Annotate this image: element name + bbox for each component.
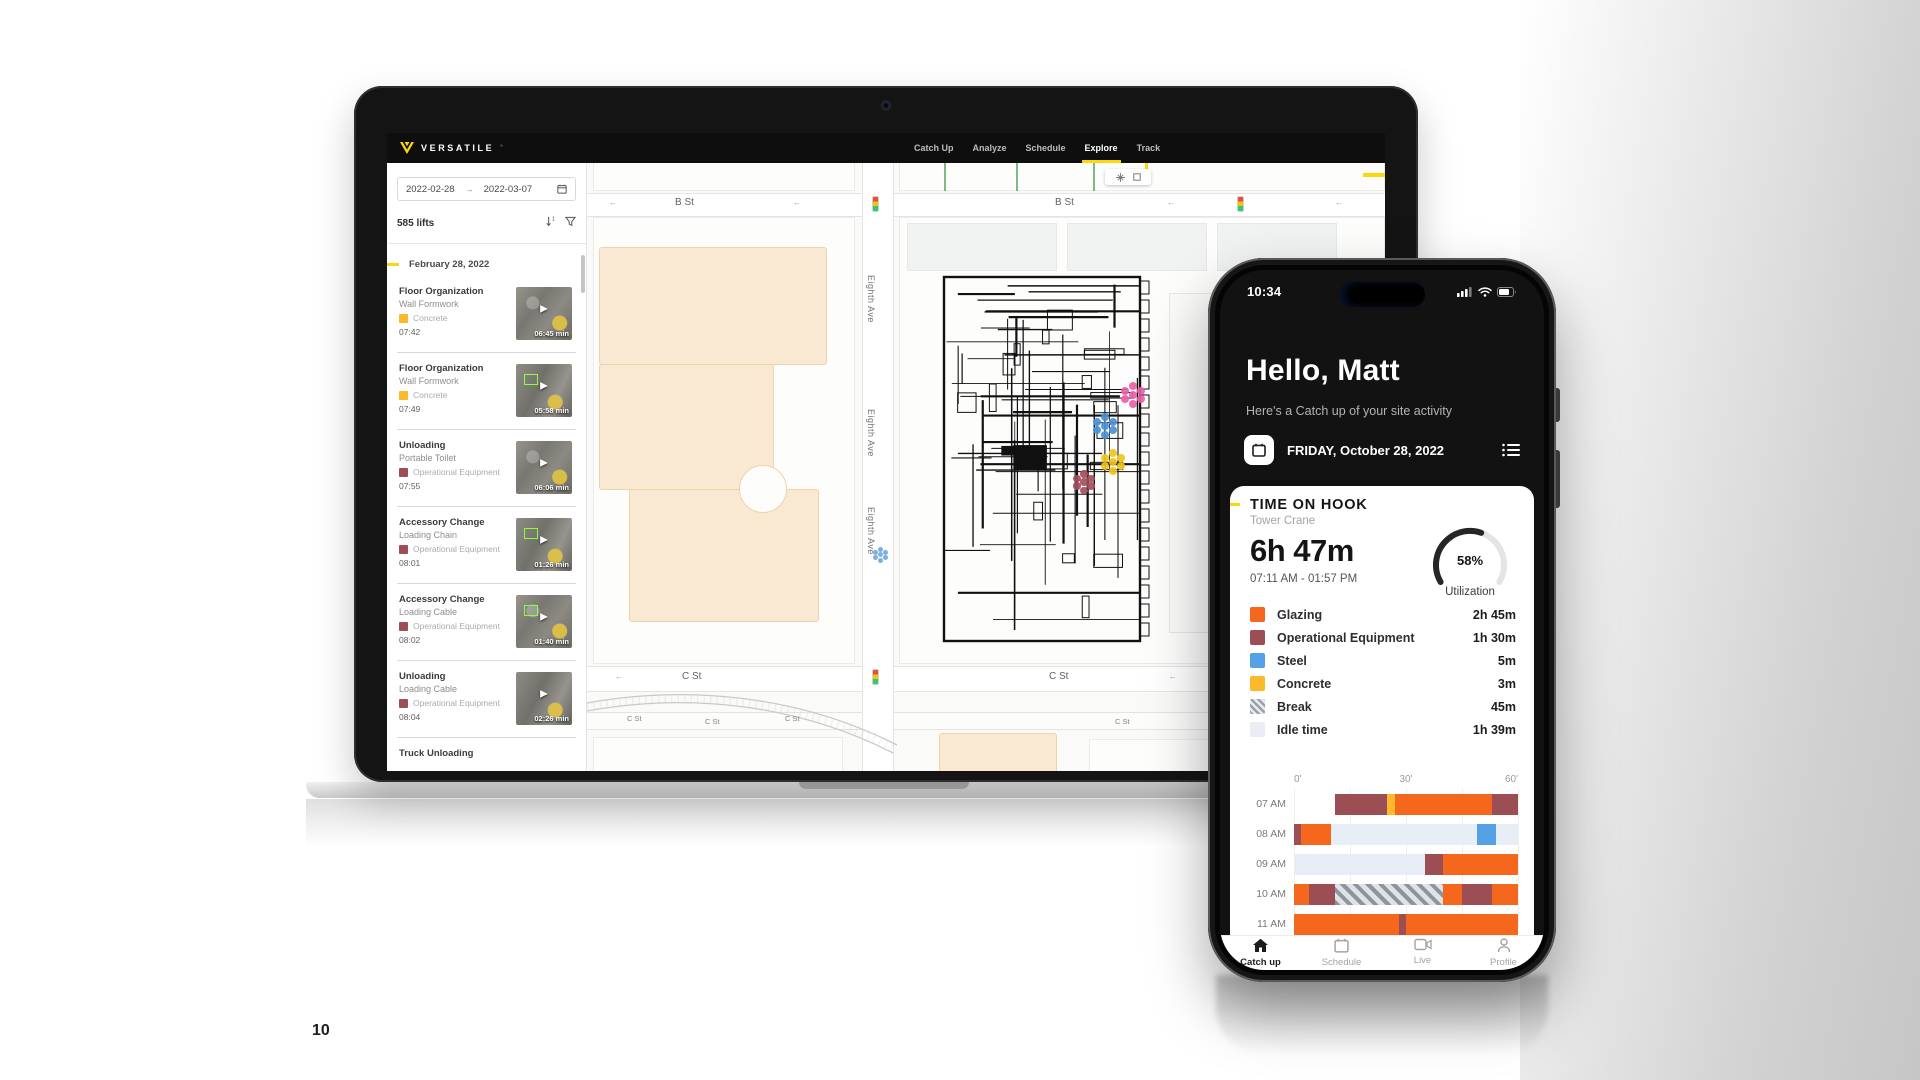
one-way-arrow-icon: ←	[615, 672, 623, 681]
brand-trademark: °	[500, 145, 502, 151]
chart-row-11-am: 11 AM	[1236, 910, 1518, 936]
category-color-chip	[399, 468, 408, 477]
segment-glazing	[1443, 884, 1462, 905]
legend-row: Steel 5m	[1250, 649, 1516, 672]
laptop-nav-schedule[interactable]: Schedule	[1026, 133, 1066, 163]
lift-list-item[interactable]: Accessory Change Loading Chain Operation…	[387, 507, 586, 584]
segment-operational-equipment	[1425, 854, 1444, 875]
segment-glazing	[1406, 914, 1518, 935]
signal-icon	[1457, 287, 1473, 297]
segment-operational-equipment	[1309, 884, 1335, 905]
lift-list: Floor Organization Wall Formwork Concret…	[387, 276, 586, 771]
phone-reflection	[1216, 975, 1548, 1055]
segment-operational-equipment	[1462, 884, 1492, 905]
axis-tick: 60'	[1505, 774, 1518, 785]
date-row: FRIDAY, October 28, 2022	[1244, 432, 1520, 468]
video-duration: 01:40 min	[534, 637, 569, 646]
street-label-b: B St	[675, 197, 694, 208]
group-date-label: February 28, 2022	[409, 259, 489, 270]
traffic-light-icon	[872, 196, 879, 212]
avenue-label-eighth-ave: Eighth Ave	[866, 409, 876, 457]
arrow-right-icon: →	[465, 184, 474, 194]
segment-operational-equipment	[1294, 824, 1301, 845]
status-time: 10:34	[1247, 284, 1281, 299]
legend-row: Concrete 3m	[1250, 672, 1516, 695]
calendar-icon	[1252, 443, 1266, 457]
segment-operational-equipment	[1399, 914, 1406, 935]
legend-value: 3m	[1498, 677, 1516, 691]
segment-break	[1335, 884, 1443, 905]
category-label: Operational Equipment	[413, 544, 500, 554]
play-icon: ▶	[540, 458, 548, 469]
building-footprint	[907, 223, 1057, 271]
legend-color-chip	[1250, 699, 1265, 714]
rail-tracks	[587, 687, 897, 771]
phone-nav-catch-up[interactable]: Catch up	[1220, 936, 1301, 970]
legend-color-chip	[1250, 676, 1265, 691]
detection-box	[524, 605, 538, 616]
lift-title: Truck Unloading	[399, 748, 574, 759]
play-icon: ▶	[540, 381, 548, 392]
lift-video-thumbnail[interactable]: ▶ 01:40 min	[516, 595, 572, 648]
play-icon: ▶	[540, 535, 548, 546]
home-icon	[1252, 940, 1269, 957]
utilization-value: 58%	[1422, 553, 1518, 568]
video-icon	[1414, 938, 1432, 955]
legend-label: Break	[1277, 700, 1312, 714]
group-dash-icon	[387, 263, 399, 266]
map-marker-cluster-yellow[interactable]	[1101, 450, 1125, 474]
page-number: 10	[312, 1022, 330, 1040]
lift-list-item[interactable]: Unloading Portable Toilet Operational Eq…	[387, 430, 586, 507]
map-toolbar[interactable]	[1105, 169, 1151, 185]
category-color-chip	[399, 314, 408, 323]
street-label-c-small: C St	[785, 714, 800, 723]
laptop-topbar: VERSATILE° Catch UpAnalyzeScheduleExplor…	[387, 133, 1385, 163]
calendar-icon	[1334, 940, 1349, 957]
axis-tick: 30'	[1399, 774, 1412, 785]
wifi-icon	[1478, 287, 1492, 297]
segment-idle-time	[1294, 854, 1425, 875]
segment-operational-equipment	[1335, 794, 1387, 815]
category-legend: Glazing 2h 45m Operational Equipment 1h …	[1250, 603, 1516, 741]
date-from[interactable]: 2022-02-28	[406, 184, 455, 195]
building-footprint	[599, 247, 827, 365]
one-way-arrow-icon: ←	[1335, 198, 1343, 207]
sort-icon[interactable]: 1	[545, 214, 556, 232]
segment-idle-time	[1496, 824, 1518, 845]
webcam-icon	[883, 102, 890, 109]
lift-video-thumbnail[interactable]: ▶ 06:45 min	[516, 287, 572, 340]
phone-nav-live[interactable]: Live	[1382, 936, 1463, 970]
segment-concrete	[1387, 794, 1394, 815]
category-label: Concrete	[413, 390, 448, 400]
street-label-c-small: C St	[627, 714, 642, 723]
building-footprint	[939, 733, 1057, 771]
category-label: Operational Equipment	[413, 621, 500, 631]
row-label: 11 AM	[1236, 918, 1286, 930]
hourly-timeline-chart: 0'30'60'07 AM08 AM09 AM10 AM11 AM	[1236, 774, 1518, 932]
time-on-hook-card: TIME ON HOOK Tower Crane 6h 47m 07:11 AM…	[1230, 486, 1534, 936]
lift-video-thumbnail[interactable]: ▶ 01:26 min	[516, 518, 572, 571]
list-menu-button[interactable]	[1502, 443, 1520, 457]
row-label: 07 AM	[1236, 798, 1286, 810]
street-label-b: B St	[1055, 197, 1074, 208]
segment-glazing	[1294, 914, 1399, 935]
play-icon: ▶	[540, 689, 548, 700]
detection-box	[524, 528, 538, 539]
divider	[387, 243, 586, 244]
legend-label: Operational Equipment	[1277, 631, 1415, 645]
lifts-sidebar: 2022-02-28 → 2022-03-07 585 lifts 1	[387, 163, 587, 771]
legend-value: 2h 45m	[1473, 608, 1516, 622]
segment-steel	[1477, 824, 1496, 845]
map-marker-cluster-pink[interactable]	[1121, 383, 1145, 407]
traffic-light-icon	[872, 669, 879, 685]
versatile-v-icon	[399, 141, 415, 155]
segment-glazing	[1294, 884, 1309, 905]
map-marker-cluster-small-blue[interactable]	[873, 547, 888, 562]
legend-value: 5m	[1498, 654, 1516, 668]
utilization-label: Utilization	[1422, 586, 1518, 598]
lift-video-thumbnail[interactable]: ▶ 02:26 min	[516, 672, 572, 725]
date-label: FRIDAY, October 28, 2022	[1287, 443, 1444, 458]
street-label-c: C St	[1049, 671, 1068, 682]
legend-row: Glazing 2h 45m	[1250, 603, 1516, 626]
phone-nav-schedule[interactable]: Schedule	[1301, 936, 1382, 970]
lift-list-item[interactable]: Floor Organization Wall Formwork Concret…	[387, 276, 586, 353]
greeting-subtitle: Here's a Catch up of your site activity	[1246, 404, 1452, 418]
pan-hand-icon[interactable]	[1116, 173, 1125, 182]
legend-value: 45m	[1491, 700, 1516, 714]
svg-text:1: 1	[552, 217, 555, 223]
versatile-logo[interactable]: VERSATILE°	[399, 141, 503, 155]
phone-screen: 10:34 Hello, Matt Here's a Catch up of y…	[1220, 270, 1544, 970]
street-b	[587, 193, 1385, 217]
legend-label: Steel	[1277, 654, 1307, 668]
chart-row-09-am: 09 AM	[1236, 850, 1518, 880]
traffic-light-icon	[1237, 196, 1244, 212]
street-label-c-small: C St	[1115, 717, 1130, 726]
category-label: Operational Equipment	[413, 698, 500, 708]
category-label: Concrete	[413, 313, 448, 323]
legend-label: Glazing	[1277, 608, 1322, 622]
crane-path-mark	[1363, 173, 1385, 177]
phone-power-button	[1556, 450, 1560, 508]
map-block	[593, 163, 855, 191]
category-color-chip	[399, 622, 408, 631]
play-icon: ▶	[540, 304, 548, 315]
category-color-chip	[399, 391, 408, 400]
video-duration: 02:26 min	[534, 714, 569, 723]
street-label-c: C St	[682, 671, 701, 682]
legend-color-chip	[1250, 653, 1265, 668]
laptop-top-nav: Catch UpAnalyzeScheduleExploreTrack	[914, 133, 1160, 163]
phone-volume-button	[1556, 388, 1560, 422]
tree-line	[944, 163, 946, 191]
sidebar-scrollbar[interactable]	[581, 255, 585, 293]
legend-row: Operational Equipment 1h 30m	[1250, 626, 1516, 649]
avenue-label-eighth-ave: Eighth Ave	[866, 275, 876, 323]
profile-icon	[1497, 940, 1511, 957]
detection-box	[524, 374, 538, 385]
street-label-c-small: C St	[705, 717, 720, 726]
legend-color-chip	[1250, 722, 1265, 737]
legend-label: Idle time	[1277, 723, 1328, 737]
select-area-icon[interactable]	[1133, 173, 1141, 181]
segment-glazing	[1443, 854, 1518, 875]
row-label: 08 AM	[1236, 828, 1286, 840]
building-footprint	[629, 489, 819, 622]
legend-row: Idle time 1h 39m	[1250, 718, 1516, 741]
filter-icon[interactable]	[565, 214, 576, 232]
phone-status-bar: 10:34	[1220, 284, 1544, 299]
battery-icon	[1497, 287, 1517, 297]
map-marker-cluster-blue[interactable]	[1093, 414, 1117, 438]
category-color-chip	[399, 545, 408, 554]
row-label: 10 AM	[1236, 888, 1286, 900]
calendar-button[interactable]	[1244, 435, 1274, 465]
calendar-icon[interactable]	[557, 184, 567, 194]
chart-row-08-am: 08 AM	[1236, 820, 1518, 850]
chart-row-07-am: 07 AM	[1236, 790, 1518, 820]
play-icon: ▶	[540, 612, 548, 623]
lift-list-item[interactable]: Unloading Loading Cable Operational Equi…	[387, 661, 586, 738]
laptop-base-notch	[799, 782, 969, 789]
date-range-picker[interactable]: 2022-02-28 → 2022-03-07	[397, 177, 576, 201]
brand-name: VERSATILE	[421, 143, 494, 153]
segment-glazing	[1492, 884, 1518, 905]
segment-idle-time	[1331, 824, 1477, 845]
laptop-nav-analyze[interactable]: Analyze	[973, 133, 1007, 163]
category-label: Operational Equipment	[413, 467, 500, 477]
video-duration: 06:06 min	[534, 483, 569, 492]
lift-list-item[interactable]: Floor Organization Wall Formwork Concret…	[387, 353, 586, 430]
background-gradient	[1520, 0, 1920, 1080]
phone-bottom-nav: Catch up Schedule Live Profile	[1220, 935, 1544, 970]
row-label: 09 AM	[1236, 858, 1286, 870]
map-marker-cluster-maroon[interactable]	[1073, 471, 1095, 493]
utilization-gauge: 58% Utilization	[1422, 525, 1518, 598]
building-courtyard	[739, 465, 787, 513]
legend-value: 1h 30m	[1473, 631, 1516, 645]
laptop-nav-catch-up[interactable]: Catch Up	[914, 133, 954, 163]
video-duration: 01:26 min	[534, 560, 569, 569]
legend-row: Break 45m	[1250, 695, 1516, 718]
laptop-nav-explore[interactable]: Explore	[1085, 133, 1118, 163]
axis-tick: 0'	[1294, 774, 1301, 785]
lift-video-thumbnail[interactable]: ▶ 06:06 min	[516, 441, 572, 494]
lift-list-item[interactable]: Accessory Change Loading Cable Operation…	[387, 584, 586, 661]
card-title: TIME ON HOOK	[1250, 497, 1516, 513]
phone-nav-profile[interactable]: Profile	[1463, 936, 1544, 970]
date-to[interactable]: 2022-03-07	[484, 184, 533, 195]
one-way-arrow-icon: ←	[1167, 198, 1175, 207]
legend-color-chip	[1250, 630, 1265, 645]
legend-color-chip	[1250, 607, 1265, 622]
legend-value: 1h 39m	[1473, 723, 1516, 737]
card-accent-dash	[1230, 503, 1240, 506]
building-footprint	[1067, 223, 1207, 271]
segment-glazing	[1395, 794, 1492, 815]
one-way-arrow-icon: ←	[1169, 672, 1177, 681]
category-color-chip	[399, 699, 408, 708]
lift-count: 585 lifts	[397, 218, 434, 229]
greeting-title: Hello, Matt	[1246, 354, 1400, 388]
segment-glazing	[1301, 824, 1331, 845]
video-duration: 06:45 min	[534, 329, 569, 338]
date-group-header[interactable]: February 28, 2022	[387, 259, 586, 270]
legend-label: Concrete	[1277, 677, 1331, 691]
tree-line	[1016, 163, 1018, 191]
one-way-arrow-icon: ←	[609, 198, 617, 207]
laptop-nav-track[interactable]: Track	[1137, 133, 1161, 163]
lift-video-thumbnail[interactable]: ▶ 05:58 min	[516, 364, 572, 417]
segment-operational-equipment	[1492, 794, 1518, 815]
chart-row-10-am: 10 AM	[1236, 880, 1518, 910]
phone-device: 10:34 Hello, Matt Here's a Catch up of y…	[1208, 258, 1556, 982]
one-way-arrow-icon: ←	[793, 198, 801, 207]
video-duration: 05:58 min	[534, 406, 569, 415]
lift-list-item[interactable]: Truck Unloading ▶	[387, 738, 586, 771]
tree-line	[1093, 163, 1095, 191]
